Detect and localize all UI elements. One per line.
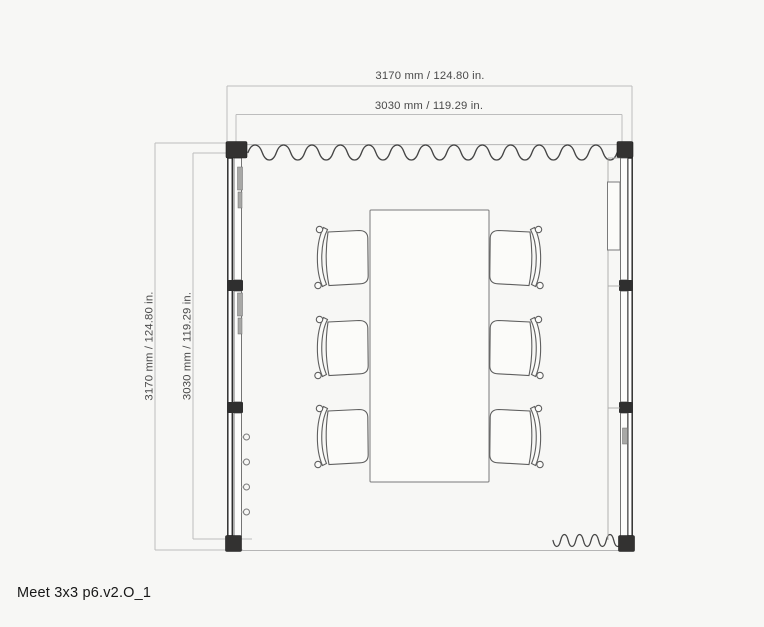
coat-hook-icon [244,484,250,490]
right-wall [608,158,634,540]
corner-post-top-right [617,142,633,158]
dimension-top-inner: 3030 mm / 119.29 in. [236,100,622,146]
plan-title: Meet 3x3 p6.v2.O_1 [17,585,151,601]
hinge-icon [238,293,243,316]
dimension-top-inner-label: 3030 mm / 119.29 in. [375,100,483,112]
corner-post-bottom-right [619,536,635,552]
corner-post-bottom-left [226,536,242,552]
right-wall-frame [628,158,633,536]
hinge-icon [238,318,242,334]
door-handle-icon [623,428,628,444]
right-wall-joint-1 [619,280,633,291]
left-wall-joint-1 [227,280,243,291]
chair [315,316,368,378]
chair [490,226,543,288]
right-wall-panel-middle [621,291,628,402]
coat-hook-icon [244,434,250,440]
coat-hooks [241,434,250,515]
floor-plan-canvas: 3170 mm / 124.80 in. 3030 mm / 119.29 in… [0,0,764,622]
wall-screen [608,182,621,250]
left-wall-frame [228,158,233,536]
hinge-icon [238,192,242,208]
left-wall-panel-bottom [234,413,242,536]
coat-hook-icon [244,459,250,465]
left-wall-joint-2 [227,402,243,413]
curtain-wave-bottom-right [553,535,621,547]
dimension-left-inner-label: 3030 mm / 119.29 in. [182,292,194,400]
hinge-icon [238,167,243,190]
left-wall [227,158,250,536]
chair [490,405,543,467]
meeting-table [370,210,489,482]
corner-post-top-left [226,142,247,159]
dimension-left-outer-label: 3170 mm / 124.80 in. [144,291,156,400]
chair [315,405,368,467]
right-wall-joint-2 [619,402,633,413]
curtain-wave-top [248,145,617,160]
coat-hook-icon [244,509,250,515]
chair [315,226,368,288]
right-wall-panel-top [621,158,628,280]
dimension-top-outer-label: 3170 mm / 124.80 in. [375,70,484,82]
chair [490,316,543,378]
furniture [315,210,543,482]
